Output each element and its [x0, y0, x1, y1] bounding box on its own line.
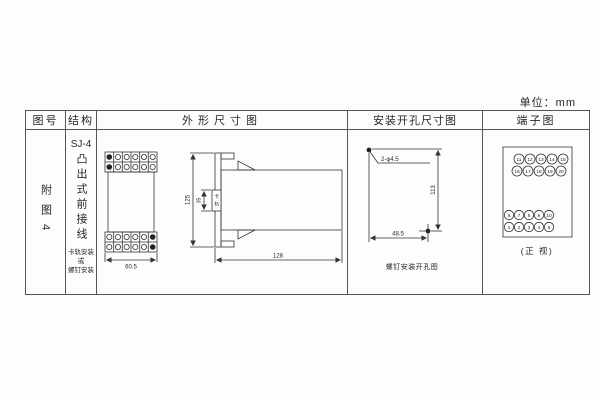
relay-side-view: 卡 轨 125 35 128: [186, 153, 343, 263]
mounting-hole-diagram: 2-φ4.5 113 48.5 螺钉安装开孔图: [367, 148, 442, 271]
datasheet-page: 单位：mm 图号 结构 外形尺寸图 安装开孔尺寸图 端子图 附图4 SJ-4 凸…: [0, 0, 600, 400]
mounting-note-line: 卡轨安装: [68, 248, 94, 257]
dim-horizontal-48-5: 48.5: [392, 232, 404, 238]
hole-diagram-caption: 螺钉安装开孔图: [386, 262, 439, 271]
terminal-number: 15: [560, 157, 566, 163]
terminal-number: 7: [518, 213, 521, 219]
dim-height-125: 125: [186, 194, 192, 205]
model-label: SJ-4: [71, 139, 92, 150]
dimension-table: 图号 结构 外形尺寸图 安装开孔尺寸图 端子图 附图4 SJ-4 凸出式前接线 …: [25, 110, 590, 295]
cell-figure-no: 附图4: [26, 130, 66, 294]
terminal-number: 5: [548, 225, 551, 231]
dim-width-60-5: 60.5: [125, 265, 137, 271]
terminal-number: 8: [528, 213, 531, 219]
terminal-number: 16: [514, 169, 520, 175]
terminal-number: 4: [538, 225, 541, 231]
header-outline-dims: 外形尺寸图: [97, 111, 348, 130]
din-rail-clip: 卡 轨: [212, 190, 221, 211]
unit-label: 单位：mm: [520, 94, 576, 110]
mounting-note-line: 螺钉安装: [68, 266, 94, 275]
relay-front-view: 60.5: [105, 152, 157, 271]
terminal-number: 19: [547, 169, 553, 175]
front-view-caption: (正 视): [521, 246, 554, 256]
terminal-bottom-group: 6 7 8 9 10 1 2 3 4 5: [504, 210, 553, 231]
mounting-note: 卡轨安装 或 螺钉安装: [68, 248, 94, 275]
terminal-number: 18: [536, 169, 542, 175]
header-terminal-diagram: 端子图: [483, 111, 589, 130]
rail-label-char: 轨: [214, 201, 219, 208]
figure-no-text: 附图4: [38, 184, 54, 239]
terminal-number: 2: [518, 225, 521, 231]
header-structure: 结构: [66, 111, 97, 130]
cell-hole-drawing: 2-φ4.5 113 48.5 螺钉安装开孔图: [348, 130, 483, 294]
mounting-hole-top: [367, 148, 372, 153]
hole-drawing: 2-φ4.5 113 48.5 螺钉安装开孔图: [348, 130, 482, 294]
terminal-number: 9: [538, 213, 541, 219]
terminal-number: 14: [549, 157, 555, 163]
cell-outline-drawing: 60.5 卡 轨 125: [97, 130, 348, 294]
terminal-number: 10: [546, 213, 552, 219]
header-figure-no: 图号: [26, 111, 66, 130]
cell-terminal-drawing: 11 12 13 14 15 16 17 18 19 20 6 7 8 9 10: [483, 130, 589, 294]
terminal-drawing: 11 12 13 14 15 16 17 18 19 20 6 7 8 9 10: [483, 130, 589, 294]
terminal-number: 17: [525, 169, 531, 175]
terminal-number: 3: [528, 225, 531, 231]
terminal-number: 13: [538, 157, 544, 163]
rail-label-char: 卡: [214, 193, 219, 200]
outline-drawing: 60.5 卡 轨 125: [97, 130, 347, 294]
dim-vertical-113: 113: [431, 185, 437, 195]
dim-rail-35: 35: [197, 198, 203, 204]
structure-type-text: 凸出式前接线: [73, 153, 89, 243]
hole-size-label: 2-φ4.5: [381, 157, 399, 163]
dim-depth-128: 128: [273, 254, 284, 260]
mounting-note-line: 或: [68, 257, 94, 266]
terminal-number: 11: [517, 157, 522, 163]
cell-structure: SJ-4 凸出式前接线 卡轨安装 或 螺钉安装: [66, 130, 97, 294]
header-mounting-holes: 安装开孔尺寸图: [348, 111, 483, 130]
terminal-number: 20: [558, 169, 564, 175]
terminal-top-group: 11 12 13 14 15 16 17 18 19 20: [512, 154, 568, 176]
terminal-number: 12: [527, 157, 533, 163]
terminal-number: 6: [508, 213, 511, 219]
terminal-number: 1: [508, 225, 511, 231]
